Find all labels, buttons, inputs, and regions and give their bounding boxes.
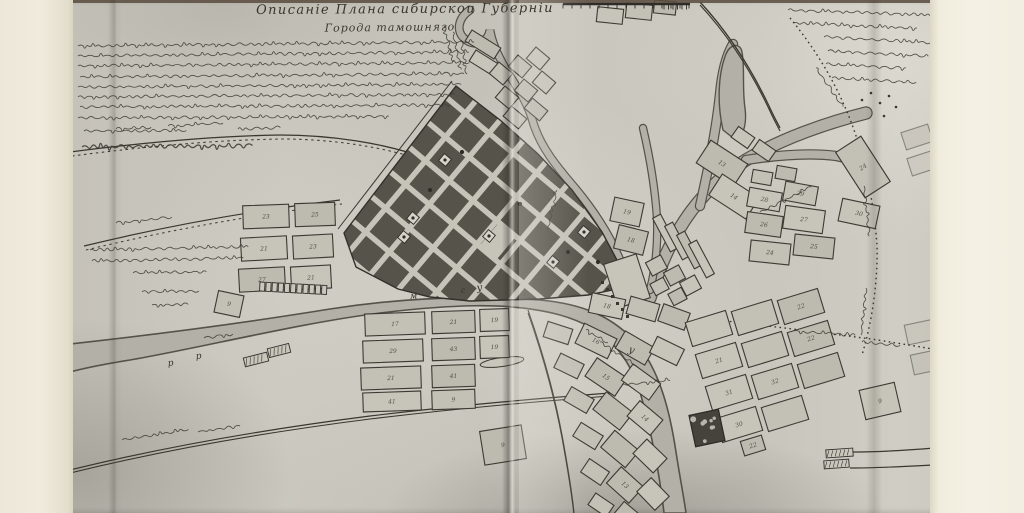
city-dot	[566, 250, 570, 254]
script-line	[238, 126, 280, 131]
block-rect	[581, 459, 610, 486]
block-rect	[761, 395, 808, 431]
city-block: 30	[838, 198, 880, 228]
city-block: 19	[480, 336, 510, 359]
script-line	[862, 341, 900, 347]
script-line	[78, 92, 454, 99]
block-rect	[650, 336, 685, 365]
city-block: 19	[610, 197, 644, 227]
block-number: 21	[259, 245, 268, 252]
road-dashes	[72, 139, 427, 162]
script-line	[84, 128, 186, 133]
block-number: 24	[765, 249, 775, 257]
tree-dot	[879, 102, 882, 105]
city-block	[588, 493, 614, 513]
city-block	[731, 299, 778, 335]
bridge-cell	[309, 285, 314, 294]
bridge-cell	[315, 285, 320, 294]
block-number: 26	[759, 221, 769, 229]
block-number: 9	[451, 396, 455, 403]
map-photo: 2325212327219131428292627242530241918172…	[0, 0, 1024, 513]
bridge-cell	[266, 282, 271, 291]
script-line	[116, 216, 172, 226]
script-line	[90, 244, 248, 252]
block-rect	[543, 321, 573, 344]
block-rect	[596, 7, 623, 25]
road	[70, 393, 610, 470]
block-rect	[658, 304, 690, 330]
city-block: 22	[777, 288, 824, 324]
church-dot	[582, 230, 585, 233]
city-block: 22	[740, 435, 765, 456]
city-block: 21	[240, 236, 287, 261]
hatched-rect	[267, 343, 291, 357]
block-rect	[797, 352, 844, 388]
script-line	[122, 427, 189, 441]
hatched-bar	[243, 352, 268, 367]
block-rect	[731, 299, 778, 335]
city-block	[581, 459, 610, 486]
bridge-cell	[321, 285, 326, 294]
city-block	[650, 336, 685, 365]
bridge-cell	[284, 283, 289, 292]
script-line	[133, 269, 206, 274]
bank-mark	[626, 315, 629, 318]
city-block: 9	[432, 389, 476, 409]
street	[0, 405, 498, 513]
city-block: 31	[705, 374, 752, 410]
bridge-cell	[272, 283, 277, 292]
city-dot	[428, 188, 432, 192]
map-letter: р	[167, 358, 174, 369]
block-number: 23	[308, 243, 317, 250]
city-block: 27	[783, 205, 826, 233]
road-edge	[70, 396, 610, 473]
script-line	[788, 8, 939, 17]
city-block: 17	[365, 312, 426, 336]
bank-mark	[601, 281, 604, 284]
script-line	[78, 114, 389, 120]
script-line	[78, 82, 461, 89]
book-page-spread: 2325212327219131428292627242530241918172…	[0, 0, 1024, 513]
block-number: 23	[261, 213, 270, 220]
block-number: 41	[449, 373, 458, 380]
city-block	[601, 430, 640, 467]
tree-dot	[870, 92, 873, 95]
city-block	[741, 331, 788, 367]
map-subtitle: Города тамошняго	[290, 20, 490, 35]
spotted-rect	[689, 409, 725, 447]
city-block	[596, 7, 623, 25]
script-line	[92, 256, 243, 263]
block-number: 19	[491, 317, 499, 324]
city-block	[775, 165, 797, 181]
city-block	[797, 352, 844, 388]
city-block: 9	[859, 382, 901, 419]
block-rect	[685, 310, 732, 346]
city-block: 24	[836, 136, 891, 198]
script-line	[78, 60, 469, 68]
script-line	[828, 49, 928, 58]
bridge-cell	[278, 283, 283, 292]
city-block	[901, 124, 933, 150]
script-line	[80, 103, 450, 110]
block-number: 43	[449, 346, 458, 353]
city-dot	[460, 150, 464, 154]
block-rect	[593, 392, 633, 430]
script-line	[78, 40, 474, 49]
city-block: 41	[363, 391, 422, 412]
city-block: 43	[432, 337, 476, 360]
city-block	[554, 353, 584, 379]
church-dot	[402, 235, 405, 238]
city-block: 22	[787, 320, 834, 356]
map-canvas: 2325212327219131428292627242530241918172…	[0, 0, 1024, 513]
road	[852, 448, 934, 452]
script-line	[198, 425, 241, 434]
map-letter: р	[195, 351, 202, 362]
bank-mark	[621, 308, 624, 311]
script-line	[82, 142, 253, 150]
bridge-cell	[303, 284, 308, 293]
city-block: 29	[363, 339, 424, 363]
script-line	[794, 21, 917, 31]
city-block: 25	[793, 234, 835, 259]
city-block: 25	[295, 202, 336, 226]
city-block: 24	[749, 240, 791, 265]
page-right-margin: 5	[930, 0, 1024, 513]
bank-mark	[606, 288, 609, 291]
block-number: 25	[809, 243, 819, 251]
script-line	[824, 35, 931, 44]
block-rect	[775, 165, 797, 181]
bridge-cell	[290, 284, 295, 293]
city-block	[573, 422, 604, 449]
script-line	[80, 71, 464, 79]
map-letter: м	[410, 291, 418, 301]
city-block: 21	[695, 342, 742, 378]
city-block: 29	[783, 181, 819, 205]
city-block	[685, 310, 732, 346]
block-rect	[901, 124, 933, 150]
block-rect	[588, 493, 614, 513]
block-number: 25	[310, 211, 319, 218]
city-block: 15	[585, 358, 627, 396]
church-dot	[551, 260, 554, 263]
block-rect	[741, 331, 788, 367]
block-rect	[573, 422, 604, 449]
script-line	[78, 50, 469, 59]
city-block: 23	[292, 234, 333, 259]
block-number: 21	[449, 319, 458, 326]
bridge-cell	[297, 284, 302, 293]
city-block: 13	[606, 467, 643, 503]
block-number: 19	[491, 344, 499, 351]
city-block: 32	[751, 363, 798, 399]
tree-dot	[888, 95, 891, 98]
page-left-margin	[0, 0, 74, 513]
block-rect	[554, 353, 584, 379]
script-line	[815, 67, 844, 107]
hatched-rect	[826, 448, 853, 458]
hatched-bar	[824, 459, 849, 469]
bank-mark	[611, 295, 614, 298]
map-title: Описанiе Плана сибирскои Губернiи	[210, 1, 600, 19]
bank-mark	[616, 302, 619, 305]
city-block: 19	[480, 309, 510, 332]
script-line	[168, 121, 223, 128]
city-block: 21	[361, 366, 422, 390]
city-block	[593, 392, 633, 430]
church-dot	[443, 158, 446, 161]
hatched-rect	[243, 352, 268, 367]
bridge-cell	[260, 282, 265, 291]
city-block	[543, 321, 573, 344]
tree-dot	[861, 99, 864, 102]
hatched-bar	[267, 343, 291, 357]
script-line	[860, 288, 869, 335]
church-dot	[487, 234, 490, 237]
city-block	[751, 169, 773, 185]
spotted-block	[689, 409, 725, 447]
script-line	[832, 76, 916, 84]
road	[850, 465, 934, 468]
city-block: 23	[243, 204, 290, 229]
block-rect	[625, 3, 652, 21]
city-block: 9	[480, 425, 527, 465]
script-line	[826, 62, 906, 71]
script-line	[142, 289, 199, 294]
block-number: 21	[306, 274, 315, 281]
block-number: 17	[391, 321, 399, 328]
block-number: 27	[799, 216, 809, 224]
city-dot	[518, 202, 522, 206]
city-block: 9	[214, 291, 244, 318]
block-number: 21	[386, 375, 395, 382]
city-block: 21	[432, 310, 476, 333]
city-block	[761, 395, 808, 431]
block-number: 29	[388, 348, 397, 355]
script-line	[152, 303, 188, 307]
tree-dot	[895, 106, 898, 109]
block-rect	[751, 169, 773, 185]
city-dot	[596, 260, 600, 264]
tree-dot	[883, 115, 886, 118]
hatched-rect	[824, 459, 849, 469]
city-block: 26	[745, 212, 784, 238]
city-block	[564, 387, 595, 414]
block-rect	[601, 430, 640, 467]
city-block	[625, 3, 652, 21]
block-number: 41	[387, 398, 396, 405]
block-rect	[564, 387, 595, 414]
city-block	[658, 304, 690, 330]
church-dot	[411, 216, 414, 219]
hatched-bar	[826, 448, 853, 458]
city-block: 41	[432, 364, 476, 387]
